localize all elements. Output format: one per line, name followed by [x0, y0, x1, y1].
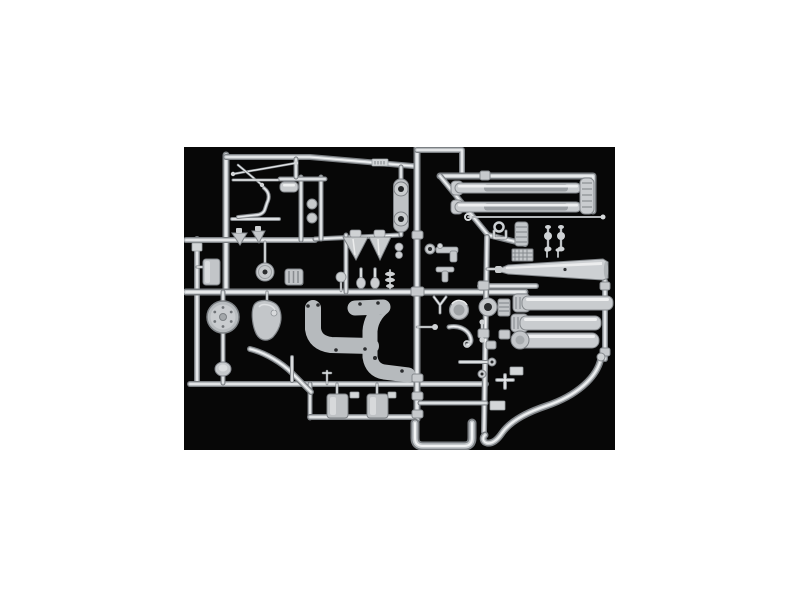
page-background: Chrome-plated plastic model kit sprue (p…: [0, 0, 800, 600]
sprue-image: [184, 147, 615, 450]
product-photo: Chrome-plated plastic model kit sprue (p…: [184, 147, 615, 450]
